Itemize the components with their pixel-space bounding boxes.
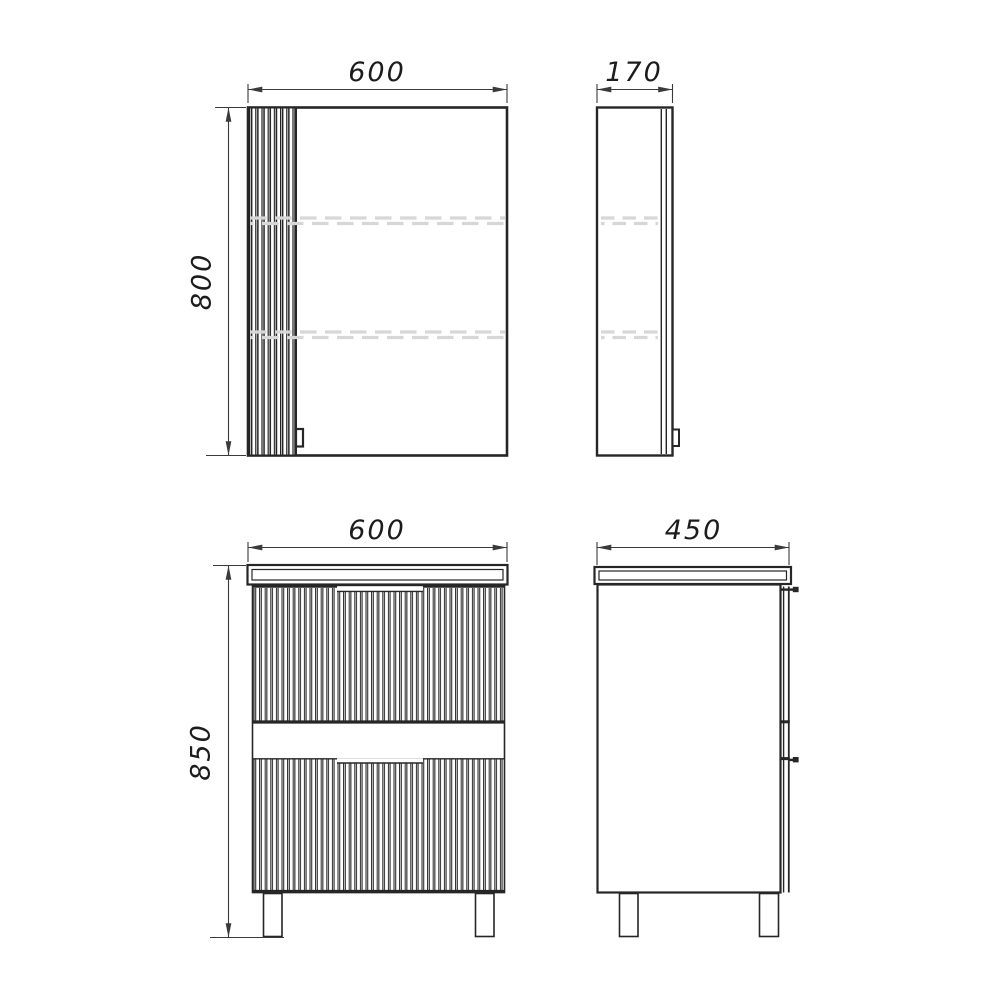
vanity-front-left-leg [264,894,283,937]
dimension-label-vanity-depth: 450 [665,515,723,546]
dimension-vanity-width: 600 [248,515,507,562]
dimension-mirror-height: 800 [187,108,247,456]
vanity-upper-drawer-ribbed-front [254,588,504,722]
vanity-side-body [598,585,781,893]
vanity-lower-drawer-ribbed-front [254,759,504,893]
mirror-cabinet-ribbed-door [248,108,296,456]
vanity-front-view [248,565,508,937]
vanity-side-back-leg [760,894,779,937]
dimension-mirror-depth: 170 [597,57,673,103]
dimension-label-mirror-height: 800 [187,253,218,311]
vanity-front-right-leg [476,894,495,937]
dimension-label-vanity-height: 850 [186,723,217,781]
mirror-cabinet-front-view [248,108,507,456]
side-handle-middle-knob [793,757,799,762]
upper-drawer-handle-recess [337,586,423,591]
mirror-door-handle [296,429,303,447]
dimension-vanity-depth: 450 [597,515,789,565]
vanity-countertop [248,565,508,585]
dimension-label-mirror-depth: 170 [605,57,663,88]
mirror-cabinet-side-view [597,108,679,456]
lower-drawer-handle-recess [337,758,423,763]
dimension-label-vanity-width: 600 [348,515,406,546]
vanity-side-front-leg [620,894,639,937]
dimension-label-mirror-width: 600 [348,57,406,88]
vanity-side-view [595,567,799,937]
vanity-side-countertop [595,567,792,584]
side-handle-top-knob [793,587,799,592]
furniture-technical-drawing: 600 170 800 [0,0,1000,1000]
dimension-mirror-width: 600 [248,57,507,103]
mirror-side-handle [673,430,680,447]
drawing-canvas: 600 170 800 [0,0,1000,1000]
